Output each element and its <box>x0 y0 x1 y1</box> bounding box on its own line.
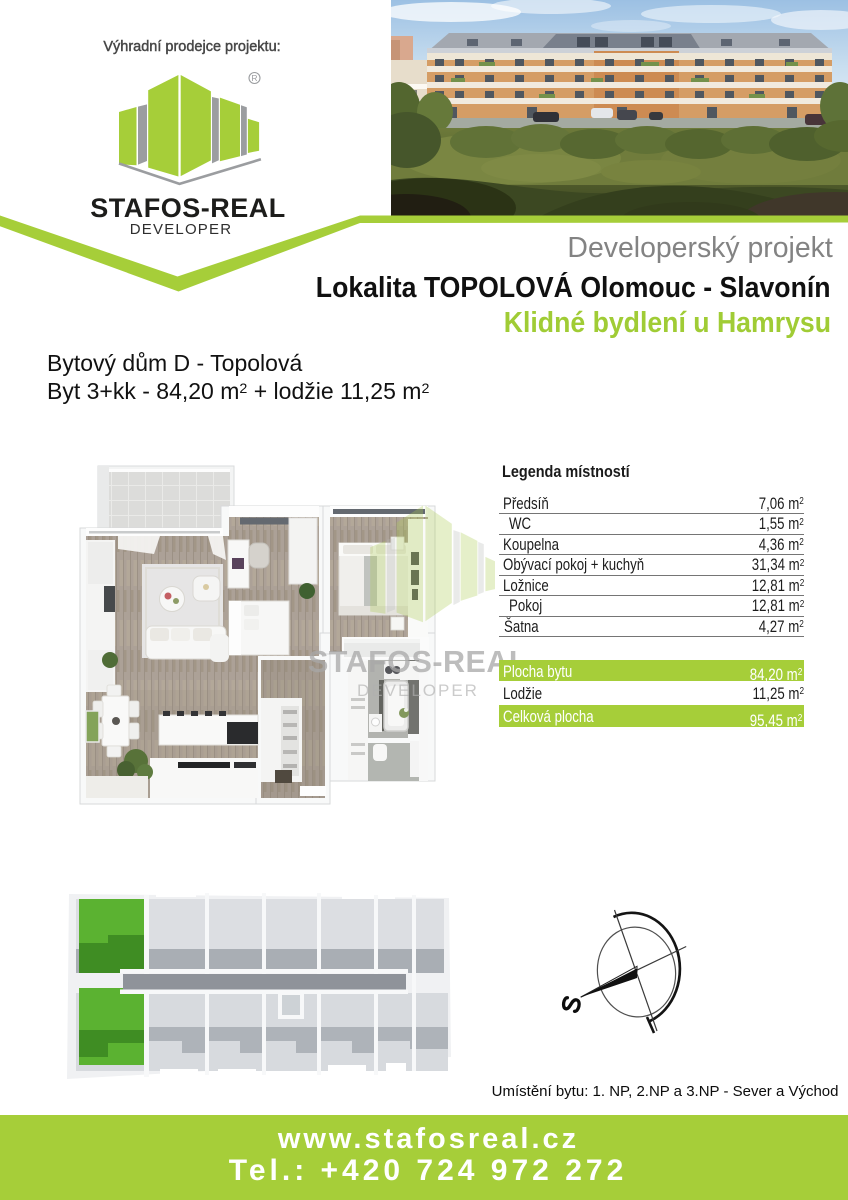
svg-text:R: R <box>251 73 257 83</box>
